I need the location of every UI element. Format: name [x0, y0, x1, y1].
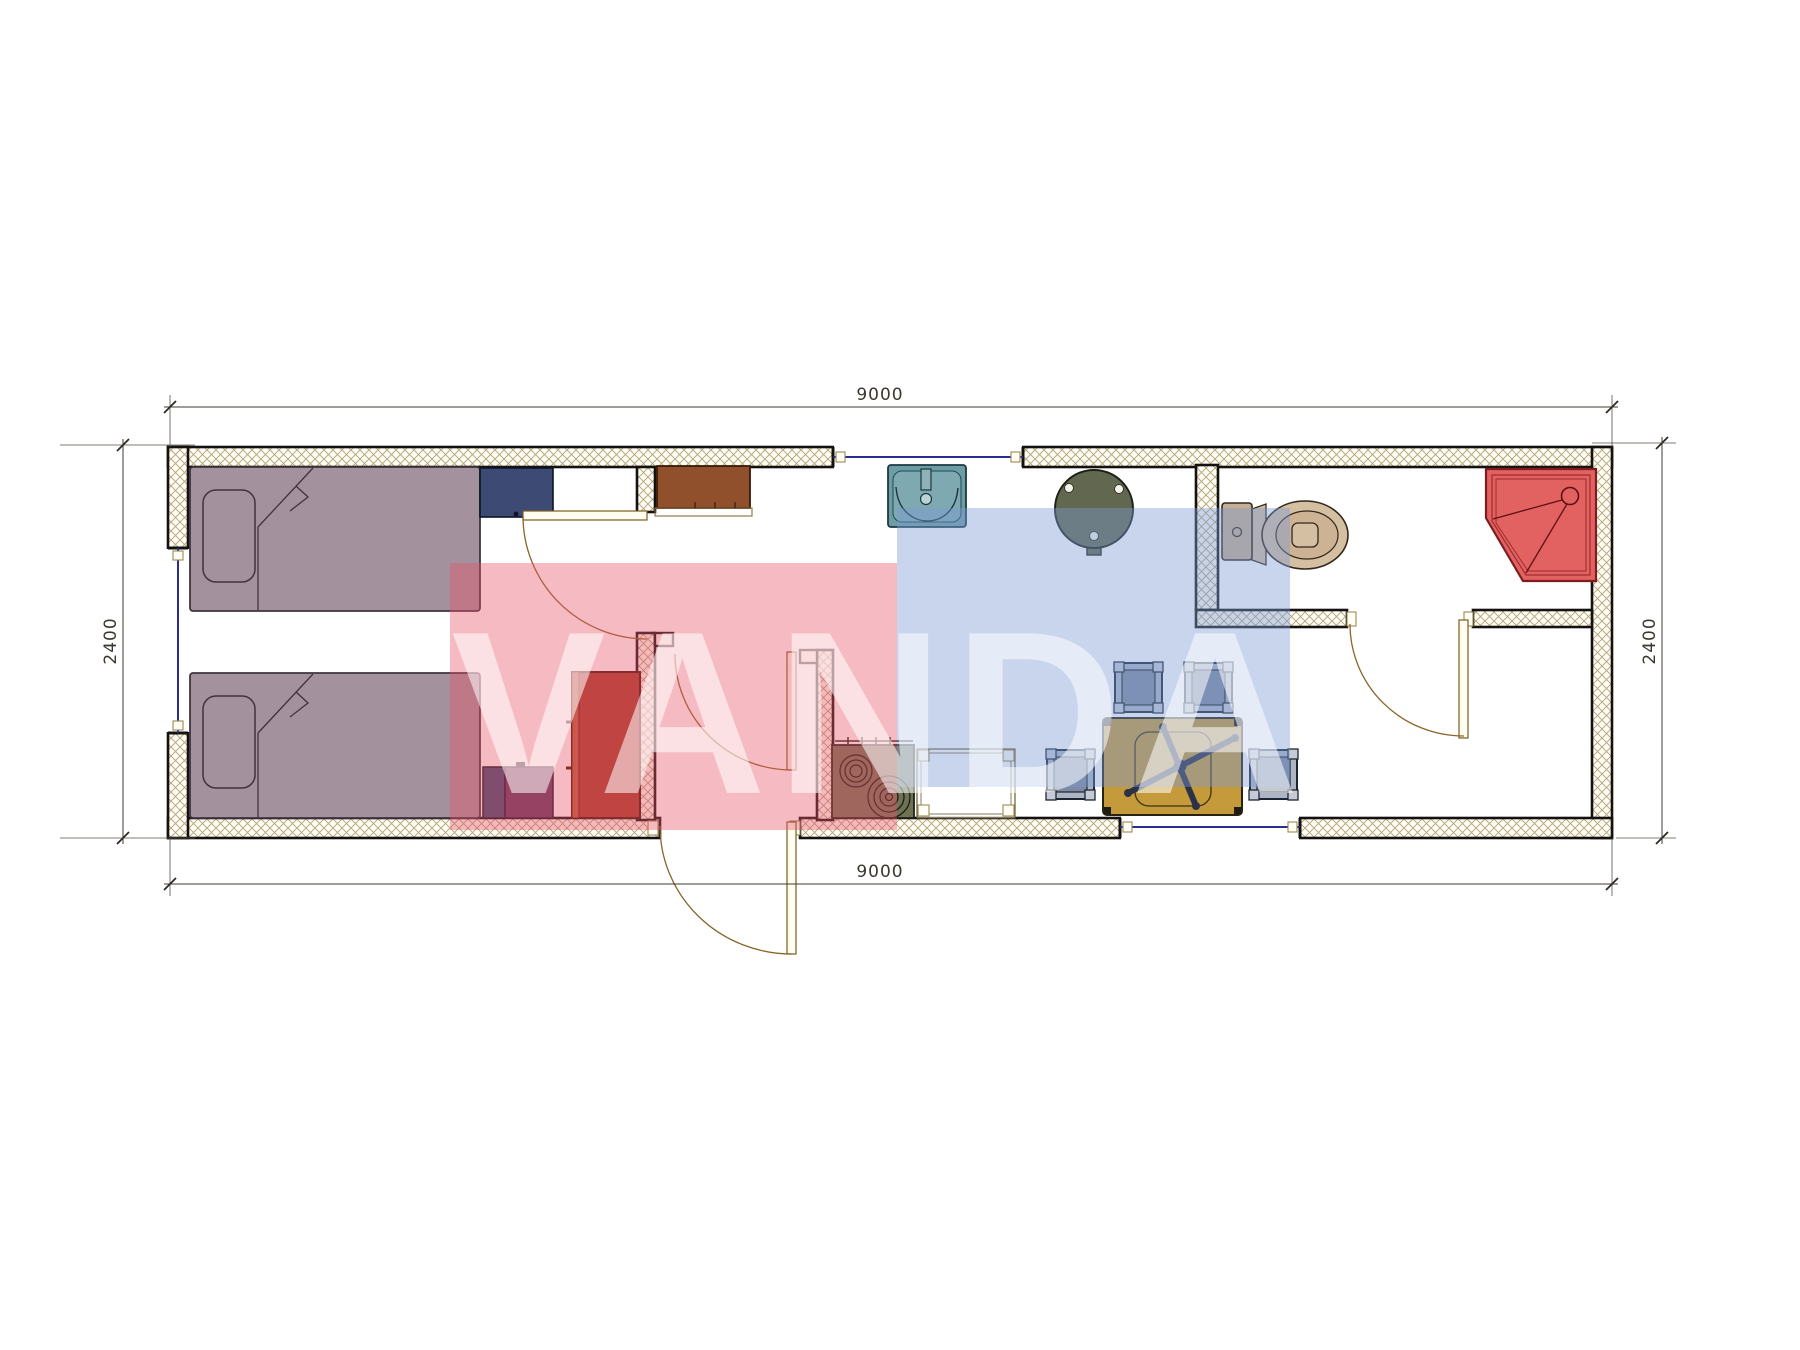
wall-bottom-right	[1300, 818, 1612, 838]
nightstand-top-body	[480, 468, 553, 517]
door-bathroom-leaf	[1459, 620, 1468, 738]
wall-top-left	[168, 447, 833, 467]
round-table-dot-1	[1065, 484, 1074, 493]
shower-tray	[1486, 469, 1596, 581]
door-entrance-swing	[660, 826, 792, 954]
dimension-bottom: 9000	[164, 838, 1618, 896]
partition-bathroom-bottom-b	[1473, 610, 1592, 627]
door-bathroom-jamb-left	[1347, 612, 1356, 626]
toilet-seat-detail	[1292, 523, 1318, 547]
door-bathroom	[1347, 612, 1473, 738]
nightstand-top	[480, 468, 553, 517]
partition-bedroom-stub	[637, 467, 655, 512]
bed-1	[190, 467, 480, 611]
wall-left-upper	[168, 447, 188, 548]
window-left-jamb-top	[173, 551, 183, 560]
floor-plan-page: VANDA 9000 9000 2400 2400	[0, 0, 1800, 1350]
bed-2	[190, 673, 480, 818]
dim-right-label: 2400	[1640, 617, 1660, 664]
window-left	[166, 548, 190, 733]
sink-drain	[921, 494, 932, 505]
window-top-jamb-left	[836, 452, 845, 462]
dim-bottom-label: 9000	[856, 862, 903, 882]
cabinet-brown-body	[657, 466, 750, 508]
watermark-text: VANDA	[451, 584, 1309, 843]
dimension-top: 9000	[164, 385, 1618, 447]
bed-2-pillow	[203, 696, 255, 788]
nightstand-top-knob	[514, 512, 519, 517]
window-top-jamb-right	[1011, 452, 1020, 462]
dim-top-label: 9000	[856, 385, 903, 405]
door-bathroom-swing	[1350, 624, 1464, 736]
round-table-dot-2	[1115, 485, 1124, 494]
shower-drain	[1562, 488, 1579, 505]
door-bedroom-leaf	[523, 511, 647, 520]
corner-shower	[1486, 469, 1596, 581]
cabinet-brown	[655, 466, 752, 516]
window-left-jamb-bottom	[173, 721, 183, 730]
cabinet-brown-counter	[655, 508, 752, 516]
dim-left-label: 2400	[101, 617, 121, 664]
sink-faucet	[921, 469, 931, 490]
floor-plan-canvas: VANDA 9000 9000 2400 2400	[0, 0, 1800, 1350]
wall-top-right	[1023, 447, 1612, 467]
watermark: VANDA	[450, 508, 1309, 843]
wall-left-lower	[168, 733, 188, 838]
bed-1-pillow	[203, 490, 255, 582]
